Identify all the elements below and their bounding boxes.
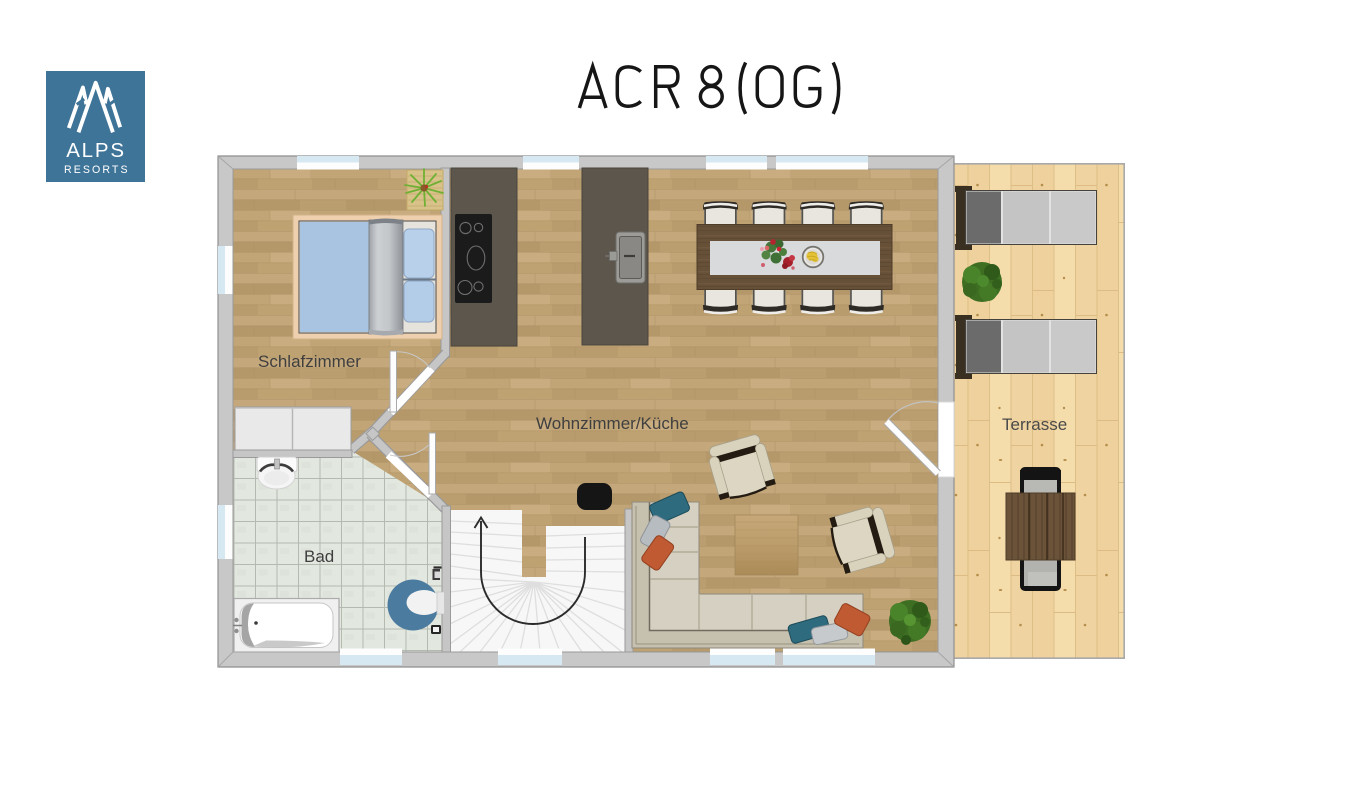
- svg-text:ALPS: ALPS: [66, 139, 126, 162]
- svg-text:Schlafzimmer: Schlafzimmer: [258, 352, 361, 371]
- svg-text:RESORTS: RESORTS: [64, 164, 130, 176]
- svg-text:Bad: Bad: [304, 547, 334, 566]
- svg-text:Wohnzimmer/Küche: Wohnzimmer/Küche: [536, 414, 689, 433]
- svg-text:Terrasse: Terrasse: [1002, 415, 1067, 434]
